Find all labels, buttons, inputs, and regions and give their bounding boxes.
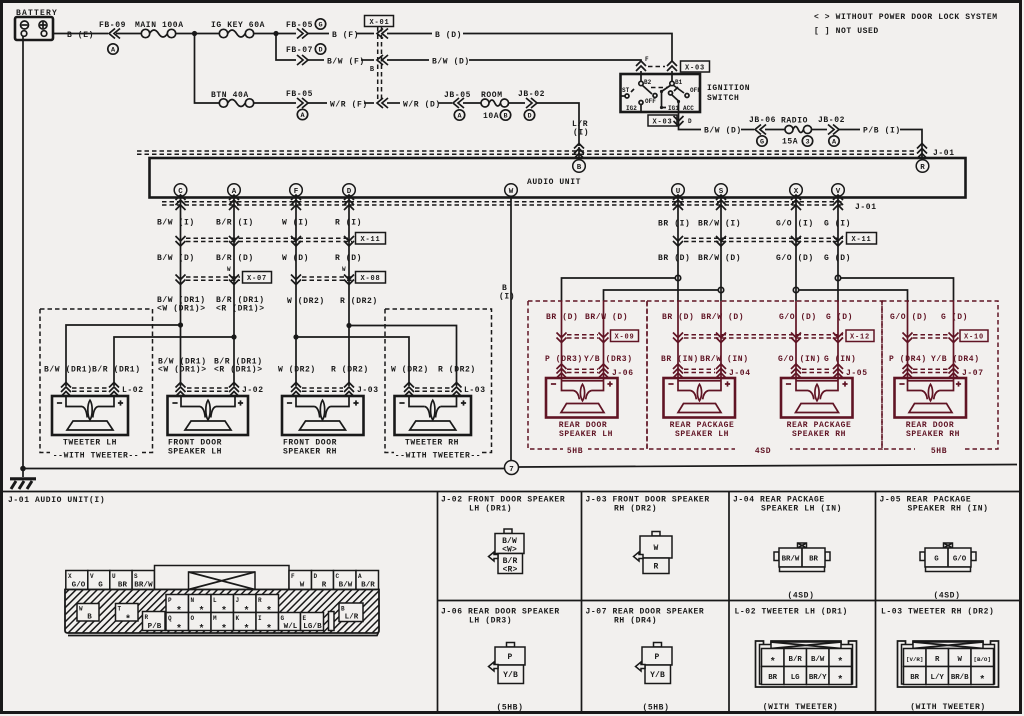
svg-text:SPEAKER LH: SPEAKER LH	[168, 448, 222, 457]
svg-text:W: W	[342, 266, 346, 273]
svg-text:JB-02: JB-02	[818, 116, 845, 125]
svg-text:F: F	[645, 56, 649, 63]
svg-text:J-01: J-01	[933, 149, 955, 158]
svg-text:(I): (I)	[573, 129, 589, 138]
svg-text:LH (DR3): LH (DR3)	[469, 617, 512, 626]
svg-text:IG KEY 60A: IG KEY 60A	[211, 21, 265, 30]
svg-text:R: R	[258, 597, 262, 604]
svg-text:W: W	[509, 188, 514, 196]
svg-text:BR/B: BR/B	[951, 674, 969, 682]
svg-text:R (DR2): R (DR2)	[340, 297, 378, 306]
svg-text:(4SD): (4SD)	[787, 592, 814, 601]
svg-text:G: G	[98, 582, 103, 590]
svg-text:B (E): B (E)	[67, 31, 94, 40]
svg-text:B2: B2	[644, 79, 652, 86]
svg-text:REAR DOOR: REAR DOOR	[906, 421, 955, 430]
svg-text:W: W	[227, 266, 231, 273]
svg-text:SPEAKER LH (IN): SPEAKER LH (IN)	[761, 505, 842, 514]
svg-text:TWEETER RH: TWEETER RH	[405, 439, 459, 448]
svg-text:BR/W (D): BR/W (D)	[701, 313, 744, 322]
svg-text:4SD: 4SD	[755, 447, 771, 456]
svg-text:W/L: W/L	[284, 623, 298, 631]
svg-text:SWITCH: SWITCH	[707, 94, 739, 103]
svg-text:J-06 REAR DOOR SPEAKER: J-06 REAR DOOR SPEAKER	[441, 608, 560, 617]
svg-text:B (F): B (F)	[332, 31, 359, 40]
svg-text:G (IN): G (IN)	[824, 355, 856, 364]
svg-text:<R>: <R>	[503, 566, 518, 575]
svg-text:X-01: X-01	[369, 19, 389, 27]
svg-text:B: B	[87, 614, 92, 622]
svg-text:B: B	[577, 164, 582, 172]
svg-text:P (DR3): P (DR3)	[545, 355, 583, 364]
svg-text:U: U	[112, 573, 116, 580]
svg-text:RH (DR4): RH (DR4)	[614, 617, 657, 626]
svg-text:REAR PACKAGE: REAR PACKAGE	[787, 421, 852, 430]
svg-text:[ ] NOT USED: [ ] NOT USED	[814, 27, 879, 36]
svg-text:J-02: J-02	[242, 386, 264, 395]
svg-text:D: D	[314, 573, 318, 580]
svg-text:RADIO: RADIO	[781, 117, 808, 126]
svg-text:BR/W (IN): BR/W (IN)	[700, 355, 749, 364]
svg-text:Q: Q	[168, 615, 172, 622]
svg-text:*: *	[221, 624, 227, 636]
svg-text:B/W (F): B/W (F)	[327, 58, 365, 67]
svg-text:SPEAKER LH: SPEAKER LH	[675, 430, 729, 439]
svg-text:G/O (IN): G/O (IN)	[778, 355, 821, 364]
svg-text:OFF: OFF	[690, 87, 701, 94]
svg-text:W: W	[957, 656, 962, 664]
svg-text:BR/W: BR/W	[782, 556, 800, 564]
svg-text:P: P	[508, 653, 513, 662]
svg-text:B/W (DR1): B/W (DR1)	[44, 366, 93, 375]
svg-text:F: F	[291, 573, 295, 580]
svg-text:BR (D): BR (D)	[546, 313, 578, 322]
svg-text:R (DR2): R (DR2)	[438, 366, 476, 375]
svg-text:X-10: X-10	[964, 334, 984, 342]
svg-text:D: D	[527, 113, 531, 121]
svg-text:<R (DR1)>: <R (DR1)>	[216, 305, 265, 314]
svg-text:J-04 REAR PACKAGE: J-04 REAR PACKAGE	[733, 496, 825, 505]
svg-text:BR: BR	[118, 582, 128, 590]
svg-text:P (DR4): P (DR4)	[889, 355, 927, 364]
svg-text:S: S	[134, 573, 138, 580]
svg-text:LG: LG	[791, 674, 800, 682]
svg-text:G (D): G (D)	[824, 254, 851, 263]
svg-text:*: *	[979, 675, 985, 687]
svg-text:B/R (D): B/R (D)	[216, 254, 254, 263]
svg-text:K: K	[236, 615, 240, 622]
svg-text:BR: BR	[768, 674, 777, 682]
svg-text:BR (D): BR (D)	[662, 313, 694, 322]
svg-text:[B/O]: [B/O]	[973, 656, 990, 663]
svg-text:ACC: ACC	[683, 105, 694, 112]
svg-text:V: V	[90, 573, 94, 580]
svg-text:R: R	[145, 614, 149, 621]
svg-text:FB-07: FB-07	[286, 46, 313, 55]
svg-text:W (DR2): W (DR2)	[287, 297, 325, 306]
svg-text:J-05 REAR PACKAGE: J-05 REAR PACKAGE	[880, 496, 972, 505]
svg-text:7: 7	[509, 466, 514, 474]
svg-text:W (DR2): W (DR2)	[391, 366, 429, 375]
svg-text:*: *	[176, 624, 182, 636]
svg-text:LG/B: LG/B	[303, 623, 322, 631]
svg-text:BR/W: BR/W	[134, 582, 153, 590]
svg-text:SPEAKER RH: SPEAKER RH	[792, 430, 846, 439]
svg-text:SPEAKER RH: SPEAKER RH	[283, 448, 337, 457]
svg-text:Y/B (DR3): Y/B (DR3)	[584, 355, 633, 364]
svg-text:(5HB): (5HB)	[642, 704, 669, 713]
svg-text:L-02: L-02	[122, 386, 144, 395]
svg-text:RH (DR2): RH (DR2)	[614, 505, 657, 514]
svg-text:*: *	[266, 624, 272, 636]
svg-text:G (D): G (D)	[941, 313, 968, 322]
svg-text:G/O (I): G/O (I)	[776, 220, 814, 229]
svg-text:L-03 TWEETER RH (DR2): L-03 TWEETER RH (DR2)	[881, 608, 994, 617]
svg-text:R (D): R (D)	[335, 254, 362, 263]
svg-text:X-03: X-03	[652, 119, 672, 127]
svg-text:B/W: B/W	[339, 582, 353, 590]
svg-text:5HB: 5HB	[931, 447, 947, 456]
svg-text:L-03: L-03	[464, 386, 486, 395]
svg-text:B: B	[503, 113, 507, 121]
svg-text:(I): (I)	[499, 293, 515, 302]
svg-text:FB-09: FB-09	[99, 21, 126, 30]
svg-text:REAR DOOR: REAR DOOR	[559, 421, 608, 430]
svg-text:P/B (I): P/B (I)	[863, 127, 901, 136]
svg-text:B/W (D): B/W (D)	[704, 127, 742, 136]
svg-text:B/W (I): B/W (I)	[157, 219, 195, 228]
svg-text:L/Y: L/Y	[931, 674, 945, 682]
svg-text:<W (DR1)>: <W (DR1)>	[157, 305, 206, 314]
svg-text:W (I): W (I)	[282, 219, 309, 228]
svg-text:ST: ST	[622, 87, 630, 94]
svg-text:JB-06: JB-06	[749, 116, 776, 125]
svg-text:W (D): W (D)	[282, 254, 309, 263]
svg-text:D: D	[688, 118, 692, 125]
svg-text:J-04: J-04	[729, 369, 751, 378]
svg-text:X-03: X-03	[685, 65, 705, 73]
svg-text:E: E	[303, 615, 307, 622]
svg-text:X-08: X-08	[360, 275, 380, 283]
svg-text:B/W (D): B/W (D)	[157, 254, 195, 263]
svg-text:BTN 40A: BTN 40A	[211, 91, 249, 100]
svg-text:*: *	[243, 624, 249, 636]
svg-text:FB-05: FB-05	[286, 90, 313, 99]
svg-text:OFF: OFF	[645, 98, 656, 105]
svg-text:SPEAKER RH: SPEAKER RH	[906, 430, 960, 439]
svg-text:G/O: G/O	[72, 582, 86, 590]
svg-text:FRONT DOOR: FRONT DOOR	[168, 439, 222, 448]
svg-text:R (I): R (I)	[335, 219, 362, 228]
svg-text:B (D): B (D)	[435, 31, 462, 40]
svg-text:G (I): G (I)	[824, 220, 851, 229]
svg-text:J-07 REAR DOOR SPEAKER: J-07 REAR DOOR SPEAKER	[586, 608, 705, 617]
svg-text:(WITH TWEETER): (WITH TWEETER)	[910, 703, 986, 712]
svg-text:W (DR2): W (DR2)	[278, 366, 316, 375]
svg-text:10A: 10A	[483, 112, 499, 121]
svg-text:W: W	[300, 582, 305, 590]
svg-text:IGNITION: IGNITION	[707, 84, 750, 93]
svg-text:--WITH TWEETER--: --WITH TWEETER--	[395, 452, 481, 461]
svg-text:BR (I): BR (I)	[658, 220, 690, 229]
svg-text:MAIN 100A: MAIN 100A	[135, 21, 184, 30]
svg-text:BR (D): BR (D)	[658, 254, 690, 263]
svg-text:R: R	[654, 563, 659, 572]
svg-text:G/O (D): G/O (D)	[776, 254, 814, 263]
svg-text:BR/Y: BR/Y	[809, 674, 827, 682]
svg-text:--WITH TWEETER--: --WITH TWEETER--	[53, 452, 139, 461]
svg-text:J-03: J-03	[357, 386, 379, 395]
svg-text:J-01 AUDIO UNIT(I): J-01 AUDIO UNIT(I)	[8, 496, 105, 505]
svg-text:X: X	[68, 573, 72, 580]
svg-text:B1: B1	[675, 79, 683, 86]
svg-text:G: G	[760, 139, 764, 147]
svg-text:P: P	[168, 597, 172, 604]
svg-text:J-03 FRONT DOOR SPEAKER: J-03 FRONT DOOR SPEAKER	[586, 496, 710, 505]
svg-text:L: L	[213, 597, 217, 604]
svg-text:X-07: X-07	[247, 275, 267, 283]
svg-text:L/R: L/R	[345, 614, 359, 622]
svg-text:J: J	[236, 597, 240, 604]
svg-text:(5HB): (5HB)	[496, 704, 523, 713]
svg-text:B/W (D): B/W (D)	[432, 58, 470, 67]
svg-text:G: G	[318, 22, 322, 30]
svg-text:G/O: G/O	[953, 556, 967, 564]
svg-text:SPEAKER RH (IN): SPEAKER RH (IN)	[908, 505, 989, 514]
svg-text:W/R (D): W/R (D)	[403, 101, 441, 110]
svg-text:*: *	[125, 614, 131, 626]
svg-text:FB-05: FB-05	[286, 21, 313, 30]
svg-text:(WITH TWEETER): (WITH TWEETER)	[763, 703, 839, 712]
svg-text:N: N	[191, 597, 195, 604]
svg-text:BR/W (D): BR/W (D)	[585, 313, 628, 322]
svg-text:W: W	[79, 606, 83, 613]
svg-text:X-09: X-09	[614, 334, 634, 342]
svg-text:J-01: J-01	[855, 203, 877, 212]
svg-text:(4SD): (4SD)	[933, 592, 960, 601]
svg-text:R: R	[935, 656, 940, 664]
svg-text:TWEETER LH: TWEETER LH	[63, 439, 117, 448]
svg-text:B/R (DR1): B/R (DR1)	[92, 366, 141, 375]
svg-text:G/O (D): G/O (D)	[779, 313, 817, 322]
svg-text:15A: 15A	[782, 138, 798, 147]
svg-text:Y/B: Y/B	[503, 671, 518, 680]
svg-text:B/R: B/R	[789, 656, 803, 664]
svg-text:O: O	[191, 615, 195, 622]
svg-text:FRONT DOOR: FRONT DOOR	[283, 439, 337, 448]
svg-text:P: P	[655, 653, 660, 662]
svg-text:Y/B (DR4): Y/B (DR4)	[931, 355, 980, 364]
svg-text:G (D): G (D)	[826, 313, 853, 322]
svg-text:R (DR2): R (DR2)	[331, 366, 369, 375]
svg-text:Y/B: Y/B	[650, 671, 665, 680]
svg-text:< > WITHOUT POWER DOOR LOCK SY: < > WITHOUT POWER DOOR LOCK SYSTEM	[814, 13, 998, 22]
svg-text:C: C	[336, 573, 340, 580]
svg-text:*: *	[837, 675, 843, 687]
svg-text:AUDIO UNIT: AUDIO UNIT	[527, 178, 581, 187]
svg-text:W/R (F): W/R (F)	[330, 101, 368, 110]
svg-text:SPEAKER LH: SPEAKER LH	[559, 430, 613, 439]
svg-text:R: R	[322, 582, 327, 590]
svg-text:G: G	[934, 556, 939, 564]
svg-text:T: T	[118, 606, 122, 613]
svg-text:X-11: X-11	[360, 236, 380, 244]
svg-text:G/O (D): G/O (D)	[890, 313, 928, 322]
svg-text:REAR PACKAGE: REAR PACKAGE	[670, 421, 735, 430]
svg-text:D: D	[318, 47, 322, 55]
svg-text:B/R (I): B/R (I)	[216, 219, 254, 228]
svg-text:P/B: P/B	[148, 623, 162, 631]
svg-text:BR: BR	[910, 674, 919, 682]
svg-text:A: A	[358, 573, 362, 580]
svg-text:X-11: X-11	[851, 236, 871, 244]
svg-text:IG1: IG1	[668, 105, 679, 112]
svg-text:L-02 TWEETER LH (DR1): L-02 TWEETER LH (DR1)	[735, 608, 848, 617]
svg-text:BR (IN): BR (IN)	[661, 355, 699, 364]
svg-text:<W (DR1)>: <W (DR1)>	[158, 366, 207, 375]
svg-text:BR/W (D): BR/W (D)	[698, 254, 741, 263]
svg-text:5HB: 5HB	[567, 447, 583, 456]
svg-text:[V/R]: [V/R]	[906, 656, 923, 663]
svg-text:B/R: B/R	[361, 582, 375, 590]
svg-text:J-06: J-06	[612, 369, 634, 378]
svg-text:J-05: J-05	[846, 369, 868, 378]
svg-text:IG2: IG2	[626, 105, 637, 112]
svg-text:BR/W (I): BR/W (I)	[698, 220, 741, 229]
svg-text:G: G	[281, 615, 285, 622]
svg-text:I: I	[258, 615, 262, 622]
svg-text:LH (DR1): LH (DR1)	[469, 505, 512, 514]
svg-text:M: M	[213, 615, 217, 622]
svg-text:J-07: J-07	[962, 369, 984, 378]
svg-text:BR: BR	[809, 556, 818, 564]
svg-text:*: *	[198, 624, 204, 636]
svg-text:B/W: B/W	[811, 656, 825, 664]
svg-text:J-02 FRONT DOOR SPEAKER: J-02 FRONT DOOR SPEAKER	[441, 496, 565, 505]
svg-text:X-12: X-12	[850, 334, 870, 342]
svg-text:3: 3	[805, 139, 809, 147]
svg-text:B: B	[341, 606, 345, 613]
svg-text:R: R	[920, 164, 925, 172]
svg-text:W: W	[654, 544, 659, 553]
svg-text:<R (DR1)>: <R (DR1)>	[214, 366, 263, 375]
